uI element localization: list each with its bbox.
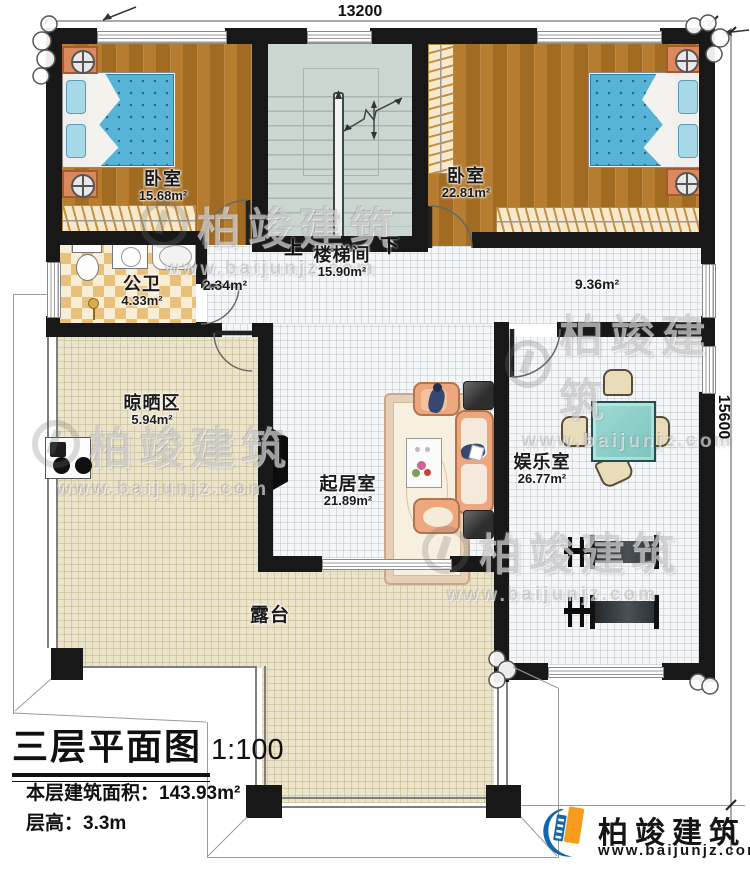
wall: [699, 28, 715, 248]
window: [322, 559, 452, 570]
stair-up-label: 上: [284, 233, 303, 260]
wall: [46, 28, 62, 242]
title-underline: [12, 773, 210, 777]
bed2-pillow-top: [678, 80, 698, 114]
brand-logo: 柏竣建筑 www.baijunjz.com: [536, 800, 741, 862]
deck-edge-top: [13, 294, 47, 295]
terrace-rail-bottom: [282, 797, 486, 799]
window: [307, 31, 372, 44]
wall: [494, 663, 548, 680]
tv: [273, 429, 288, 490]
room-label-bedroom2: 卧室22.81m²: [442, 167, 490, 200]
stair-down-label: 下: [380, 231, 399, 258]
terrace-rail-right: [497, 682, 499, 799]
bed2-pillow-bottom: [678, 124, 698, 158]
gym-bench: [566, 594, 659, 630]
floor-area-line: 本层建筑面积：143.93m²: [26, 778, 240, 805]
nightstand: [666, 45, 702, 73]
dining-chair: [603, 369, 633, 396]
room-label-entertainment: 娱乐室26.77m²: [514, 453, 571, 486]
title-block: 三层平面图1:100: [12, 718, 284, 782]
coffee-table: [406, 438, 442, 488]
wall: [699, 392, 715, 682]
room-label-stairwell: 楼梯间15.90m²: [314, 246, 371, 279]
area-label-corridor: 2.34m²: [203, 278, 247, 293]
deck-edge-bottom: [207, 857, 559, 858]
terrace-rail-right-inner: [506, 682, 508, 799]
wall: [701, 316, 715, 346]
wall: [252, 323, 273, 337]
floor-plan: 柏竣建筑 www.baijunjz.com 柏竣建筑 www.baijunjz.…: [0, 0, 750, 874]
nightstand: [62, 170, 98, 198]
toilet-bowl: [76, 254, 99, 281]
room-label-terrace: 露台: [250, 606, 290, 627]
side-table: [463, 381, 494, 410]
terrace-rail-bottom-inner: [282, 806, 486, 808]
room-label-living: 起居室21.89m²: [320, 475, 377, 508]
wall: [46, 242, 60, 262]
terrace-post: [246, 785, 282, 818]
room-label-bedroom1: 卧室15.68m²: [139, 170, 187, 203]
window: [537, 31, 662, 44]
wall: [252, 42, 268, 250]
person-head: [433, 383, 442, 392]
window: [548, 667, 664, 678]
wall: [557, 322, 703, 337]
side-table: [463, 510, 494, 539]
wall: [258, 556, 322, 572]
stair-rail: [333, 92, 344, 238]
dining-chair: [561, 416, 588, 447]
area-label-hall: 9.36m²: [575, 277, 619, 292]
wall: [701, 248, 715, 264]
wall: [472, 232, 701, 248]
floor-drain-pipe: [93, 308, 95, 320]
terrace-edge-line: [57, 666, 257, 668]
washing-machine: [112, 242, 148, 269]
wall: [450, 556, 494, 572]
plan-title: 三层平面图: [12, 726, 202, 767]
window: [702, 264, 716, 318]
window: [97, 31, 227, 44]
corridor-hall-floor: [207, 246, 703, 324]
gym-bench: [566, 534, 659, 570]
wall: [412, 42, 428, 252]
window: [47, 262, 61, 318]
terrace-post: [486, 785, 521, 818]
brand-logo-icon: [536, 802, 594, 860]
dimension-right: 15600: [714, 387, 732, 447]
nightstand: [62, 46, 98, 74]
brand-url: www.baijunjz.com: [598, 842, 750, 859]
room-label-drying: 晾晒区5.94m²: [124, 394, 181, 427]
game-table: [591, 401, 656, 462]
wardrobe: [428, 44, 454, 174]
room-label-bathroom: 公卫4.33m²: [121, 275, 162, 308]
wall: [46, 323, 222, 337]
bed1-pillow-top: [66, 80, 86, 114]
plan-scale: 1:100: [202, 734, 284, 766]
deck-edge-left: [13, 294, 14, 714]
wall: [662, 663, 715, 680]
bed1-pillow-bottom: [66, 124, 86, 158]
armchair: [413, 498, 460, 534]
floor-height-line: 层高：3.3m: [26, 808, 126, 835]
wall: [370, 28, 537, 44]
sofa: [455, 410, 494, 514]
dimension-top: 13200: [338, 3, 383, 21]
wall: [494, 322, 509, 682]
wall: [258, 337, 273, 561]
wall: [55, 231, 205, 245]
laundry-stove: [45, 437, 91, 479]
nightstand: [666, 168, 702, 196]
terrace-post: [51, 648, 83, 680]
